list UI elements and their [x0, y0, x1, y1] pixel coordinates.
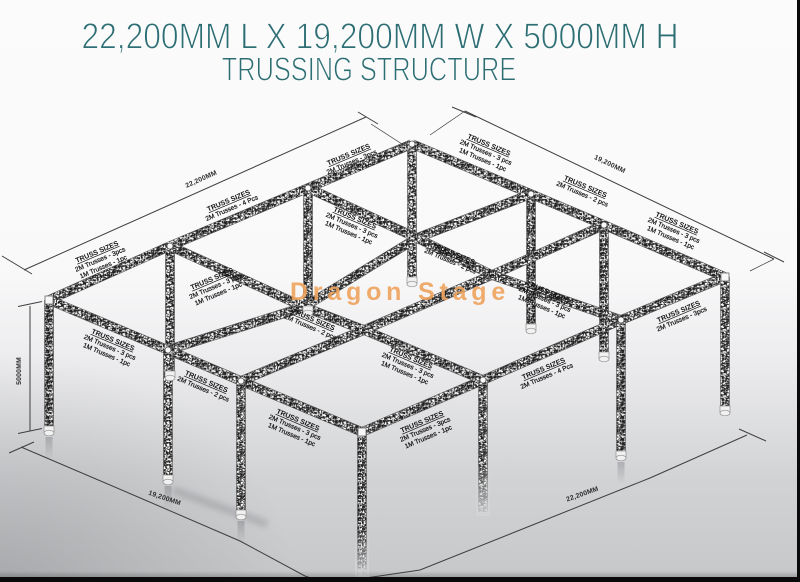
svg-text:22,200MM L X 19,200MM W X 5000: 22,200MM L X 19,200MM W X 5000MM H — [81, 16, 678, 57]
svg-text:22,200MM: 22,200MM — [185, 170, 219, 190]
svg-text:22,200MM: 22,200MM — [565, 486, 599, 504]
svg-text:5000MM: 5000MM — [16, 357, 23, 385]
svg-text:19,200MM: 19,200MM — [593, 154, 627, 175]
svg-text:TRUSSING STRUCTURE: TRUSSING STRUCTURE — [222, 52, 516, 89]
